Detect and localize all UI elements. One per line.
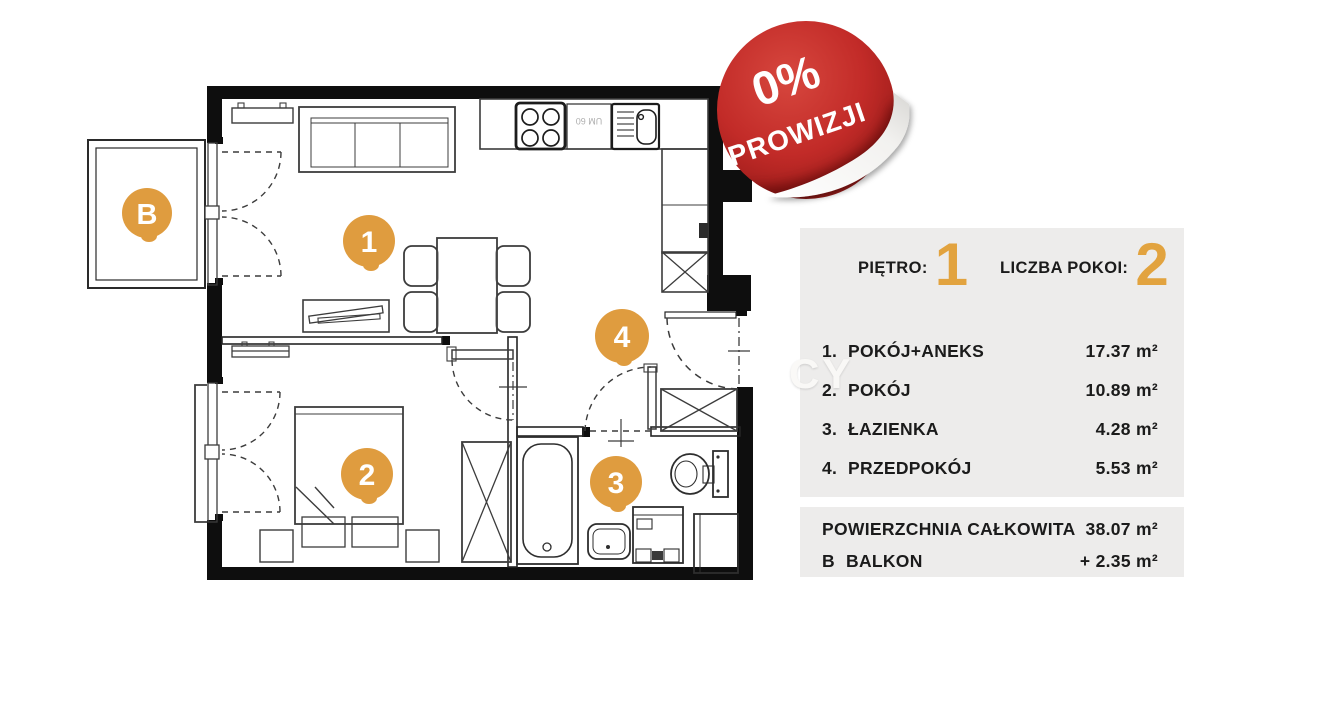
svg-text:4: 4 xyxy=(614,321,631,354)
totals-list: POWIERZCHNIA CAŁKOWITA 38.07 m² B BALKON… xyxy=(822,513,1158,577)
room-name: PRZEDPOKÓJ xyxy=(848,458,1096,479)
room-count-value: 2 xyxy=(1135,242,1168,288)
room-area-row: 3. ŁAZIENKA 4.28 m² xyxy=(822,410,1158,449)
marker-room1: 1 xyxy=(343,215,395,271)
room-count-info: LICZBA POKOI: 2 xyxy=(1000,242,1169,288)
balcony-area: + 2.35 m² xyxy=(1080,551,1158,572)
balcony-area-row: B BALKON + 2.35 m² xyxy=(822,545,1158,577)
kitchen-sink xyxy=(612,104,659,149)
kitchen-cabinet: UM 60 xyxy=(567,104,611,149)
nightstand-left xyxy=(260,530,293,562)
marker-room4: 4 xyxy=(595,309,649,366)
unit-info-panel: PIĘTRO: 1 LICZBA POKOI: 2 1. POKÓJ+ANEKS… xyxy=(800,228,1184,497)
balcony-letter: B xyxy=(822,551,846,572)
toilet xyxy=(671,451,728,497)
room-area: 10.89 m² xyxy=(1086,380,1158,401)
listing-floorplan-image: UM 60 xyxy=(0,0,1344,728)
bedroom-wardrobe xyxy=(462,442,511,562)
kitchen-cabinet-label: UM 60 xyxy=(576,116,603,126)
totals-panel: POWIERZCHNIA CAŁKOWITA 38.07 m² B BALKON… xyxy=(800,507,1184,577)
floor-value: 1 xyxy=(935,242,968,288)
entrance-door xyxy=(667,318,750,389)
bathtub xyxy=(517,437,578,564)
unit-info-header: PIĘTRO: 1 LICZBA POKOI: 2 xyxy=(800,242,1184,322)
room-name: POKÓJ+ANEKS xyxy=(848,341,1086,362)
nightstand-right xyxy=(406,530,439,562)
hall-wardrobe xyxy=(661,389,737,431)
bathroom-door xyxy=(585,364,657,447)
fridge xyxy=(662,252,708,292)
room-number: 4. xyxy=(822,458,848,479)
dining-table xyxy=(404,238,530,333)
total-area: 38.07 m² xyxy=(1086,519,1158,540)
room-markers: B 1 2 3 4 xyxy=(122,188,649,512)
sofa xyxy=(299,107,455,172)
tv-sideboard xyxy=(303,300,389,332)
marker-room2: 2 xyxy=(341,448,393,504)
promo-badge: 0% PROWIZJI xyxy=(717,21,910,199)
floor-info: PIĘTRO: 1 xyxy=(858,242,968,288)
room-name: POKÓJ xyxy=(848,380,1086,401)
washbasin xyxy=(588,524,630,559)
kitchen-flue xyxy=(699,223,708,238)
svg-text:B: B xyxy=(137,199,158,231)
room-area-row: 4. PRZEDPOKÓJ 5.53 m² xyxy=(822,449,1158,488)
room-area: 5.53 m² xyxy=(1096,458,1158,479)
marker-balcony: B xyxy=(122,188,172,242)
total-name: POWIERZCHNIA CAŁKOWITA xyxy=(822,519,1086,540)
room-number: 2. xyxy=(822,380,848,401)
room-area: 4.28 m² xyxy=(1096,419,1158,440)
floor-label: PIĘTRO: xyxy=(858,259,928,278)
room-count-label: LICZBA POKOI: xyxy=(1000,259,1128,278)
bedroom-door xyxy=(447,347,527,420)
svg-text:2: 2 xyxy=(359,459,376,492)
balcony-name: BALKON xyxy=(846,551,1080,572)
svg-text:3: 3 xyxy=(608,467,625,500)
bedroom-window xyxy=(195,383,280,522)
svg-text:1: 1 xyxy=(361,226,378,259)
balcony-door xyxy=(205,143,281,285)
wall-shelf xyxy=(232,103,293,123)
room-area-row: 2. POKÓJ 10.89 m² xyxy=(822,371,1158,410)
room-area: 17.37 m² xyxy=(1086,341,1158,362)
washing-machine xyxy=(633,507,683,563)
room-name: ŁAZIENKA xyxy=(848,419,1096,440)
marker-room3: 3 xyxy=(590,456,642,512)
room-area-list: 1. POKÓJ+ANEKS 17.37 m² 2. POKÓJ 10.89 m… xyxy=(822,332,1158,488)
bathroom-cabinet xyxy=(694,514,738,573)
room-number: 1. xyxy=(822,341,848,362)
room-area-row: 1. POKÓJ+ANEKS 17.37 m² xyxy=(822,332,1158,371)
room-number: 3. xyxy=(822,419,848,440)
hob xyxy=(516,103,565,149)
total-area-row: POWIERZCHNIA CAŁKOWITA 38.07 m² xyxy=(822,513,1158,545)
